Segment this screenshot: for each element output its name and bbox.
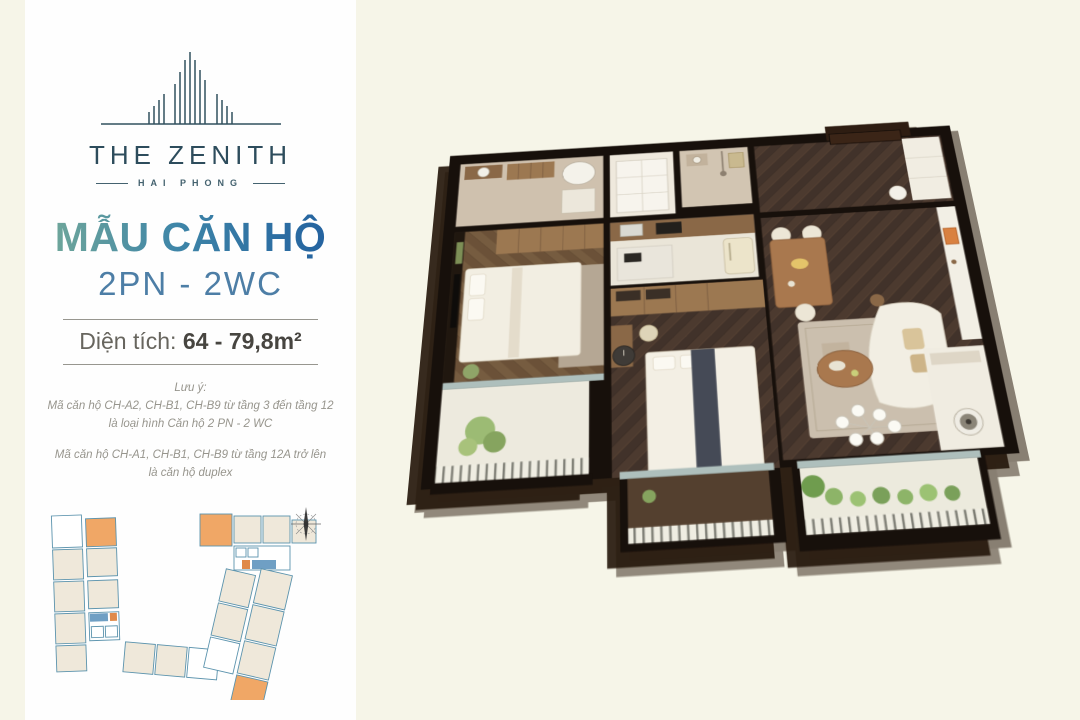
brochure-page: { "page": { "background": "#f6f5e8" }, "… bbox=[0, 0, 1080, 720]
site-plan-left-block bbox=[51, 510, 220, 685]
dining-table bbox=[770, 237, 833, 308]
bedroom-balcony bbox=[620, 463, 780, 545]
bedroom-2 bbox=[611, 280, 780, 479]
apartment-3d-render bbox=[412, 122, 1042, 594]
area-value: 64 - 79,8m² bbox=[183, 328, 302, 354]
wall-art bbox=[728, 152, 744, 167]
cushion bbox=[902, 328, 926, 350]
bathroom-2 bbox=[679, 147, 752, 208]
logo-location-text: HAI PHONG bbox=[138, 178, 243, 188]
master-balcony bbox=[435, 373, 605, 483]
master-bedroom bbox=[443, 223, 604, 383]
page-title: MẪU CĂN HỘ bbox=[25, 214, 356, 261]
hallway bbox=[610, 152, 676, 218]
pillow bbox=[653, 356, 675, 371]
note-line: Mã căn hộ CH-A2, CH-B1, CH-B9 từ tầng 3 … bbox=[25, 398, 356, 416]
kitchen bbox=[610, 214, 759, 285]
zenith-building-logo-icon bbox=[93, 50, 289, 138]
pillow bbox=[467, 298, 484, 321]
kitchen-island bbox=[617, 245, 673, 281]
framed-art bbox=[943, 228, 959, 245]
note-line: là loại hình Căn hộ 2 PN - 2 WC bbox=[25, 416, 356, 434]
note-line: là căn hộ duplex bbox=[25, 465, 356, 483]
pillow bbox=[469, 274, 486, 296]
floor-plate-site-plan bbox=[50, 500, 332, 700]
note-line: Mã căn hộ CH-A1, CH-B1, CH-B9 từ tầng 12… bbox=[25, 447, 356, 465]
area-label: Diện tích: bbox=[79, 328, 176, 354]
logo-location: HAI PHONG bbox=[25, 178, 356, 188]
logo-wordmark: THE ZENITH bbox=[25, 140, 356, 171]
notes-section: Lưu ý: Mã căn hộ CH-A2, CH-B1, CH-B9 từ … bbox=[25, 380, 356, 483]
area-section: Diện tích: 64 - 79,8m² bbox=[63, 319, 318, 365]
notes-heading: Lưu ý: bbox=[25, 380, 356, 398]
retro-fridge bbox=[723, 237, 755, 274]
highlighted-unit bbox=[85, 518, 116, 547]
cooktop bbox=[656, 222, 682, 235]
living-balcony bbox=[797, 450, 994, 535]
info-card: THE ZENITH HAI PHONG MẪU CĂN HỘ 2PN - 2W… bbox=[25, 0, 356, 720]
unit-type-subtitle: 2PN - 2WC bbox=[25, 265, 356, 303]
bathroom-1 bbox=[456, 156, 604, 227]
sink bbox=[620, 224, 642, 237]
highlighted-unit bbox=[200, 514, 232, 546]
